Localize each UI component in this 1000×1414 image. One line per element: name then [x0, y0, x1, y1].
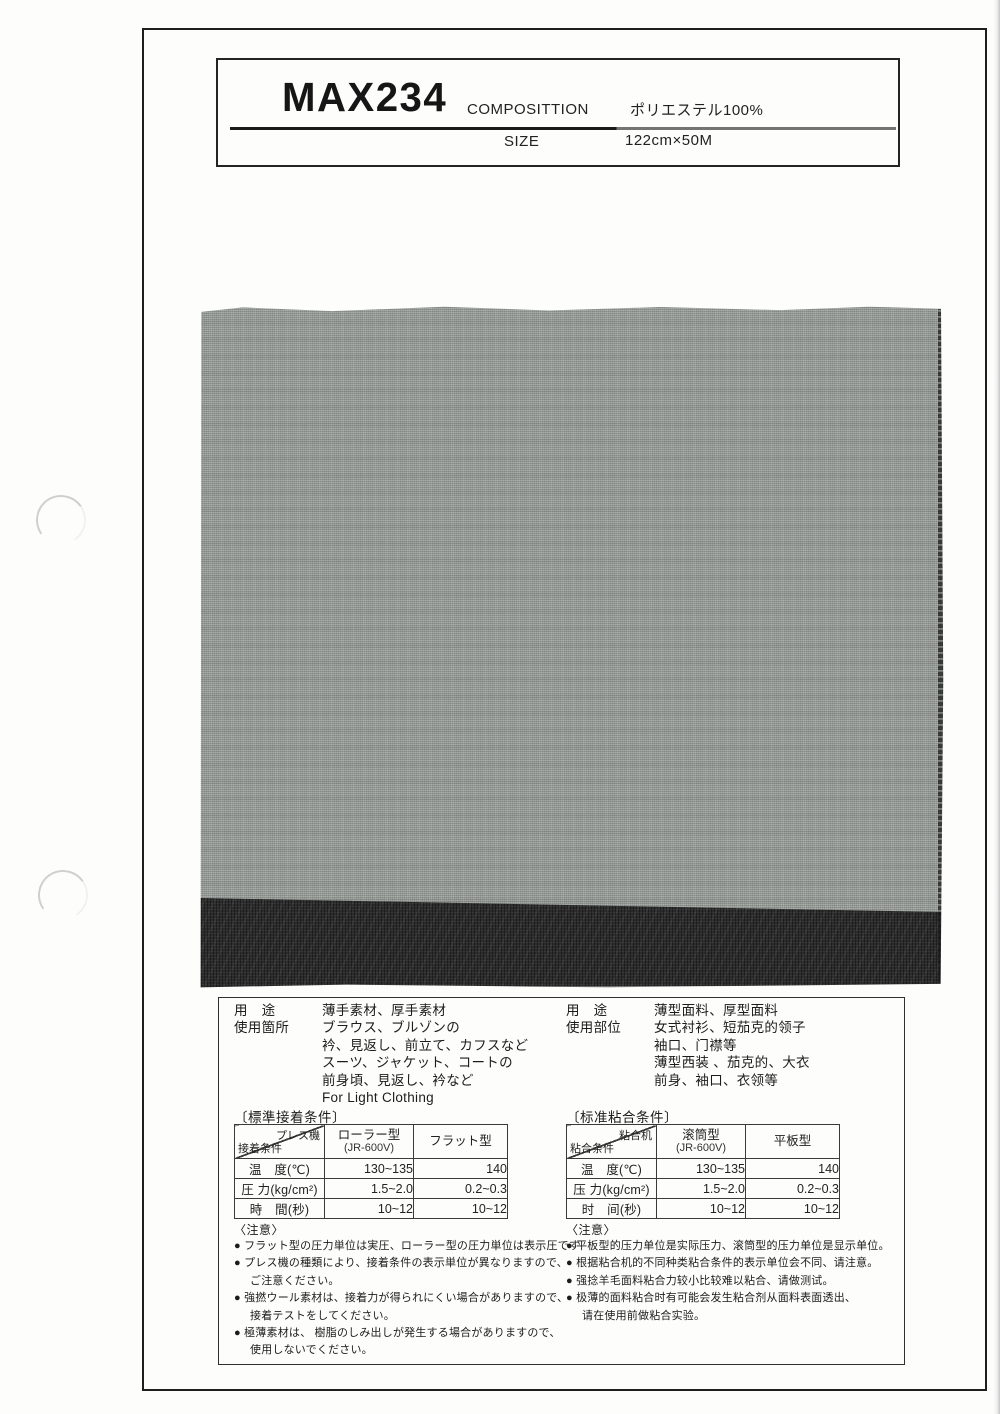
- column-header-roller: 滚筒型 (JR-600V): [657, 1125, 746, 1159]
- column-header-flat: 平板型: [746, 1125, 840, 1159]
- usage-text: 薄手素材、厚手素材: [322, 1002, 446, 1019]
- punch-hole-top: [32, 491, 90, 549]
- note-line: ● 根据粘合机的不同种类粘合条件的表示单位会不同、请注意。: [566, 1255, 910, 1272]
- usage-row: 使用部位女式衬衫、短茄克的领子: [566, 1019, 896, 1036]
- table-row-temperature: 温 度(℃) 130~135 140: [567, 1159, 840, 1179]
- usage-text: 薄型面料、厚型面料: [654, 1002, 778, 1019]
- table-row-time: 时 间(秒) 10~12 10~12: [567, 1199, 840, 1219]
- usage-text: 前身頃、見返し、衿など: [322, 1072, 474, 1089]
- punch-hole-bottom: [34, 866, 92, 924]
- notes-block-jp: ● フラット型の圧力単位は実圧、ローラー型の圧力単位は表示圧です ● プレス機の…: [234, 1238, 580, 1360]
- usage-block-jp: 用 途薄手素材、厚手素材 使用箇所ブラウス、ブルゾンの 衿、見返し、前立て、カフ…: [234, 1002, 566, 1106]
- chinese-column: 用 途薄型面料、厚型面料 使用部位女式衬衫、短茄克的领子 袖口、门襟等 薄型西装…: [566, 998, 896, 1364]
- bonding-conditions-table-cn: 粘合机 粘合条件 滚筒型 (JR-600V) 平板型 温 度(℃) 130~13…: [566, 1124, 840, 1219]
- note-line: 使用しないでください。: [234, 1342, 580, 1359]
- notes-title-cn: 〈注意〉: [566, 1221, 616, 1238]
- diagonal-bottom-label: 接着条件: [238, 1140, 282, 1156]
- usage-label: 用 途: [566, 1002, 654, 1019]
- usage-row: 袖口、门襟等: [566, 1037, 896, 1054]
- machine-model: (JR-600V): [657, 1142, 745, 1155]
- fabric-swatch: [198, 305, 944, 988]
- usage-label: 用 途: [234, 1002, 322, 1019]
- usage-text: 薄型西装 、茄克的、大衣: [654, 1054, 810, 1071]
- usage-label: 使用箇所: [234, 1019, 322, 1036]
- table-row-pressure: 压 力(kg/cm²) 1.5~2.0 0.2~0.3: [567, 1179, 840, 1199]
- usage-row: 前身頃、見返し、衿など: [234, 1072, 566, 1089]
- usage-label: 使用部位: [566, 1019, 654, 1036]
- note-line: ● 极薄的面料粘合时有可能会发生粘合剂从面料表面透出、: [566, 1290, 910, 1307]
- usage-row: 用 途薄手素材、厚手素材: [234, 1002, 566, 1019]
- usage-row: 用 途薄型面料、厚型面料: [566, 1002, 896, 1019]
- usage-text: 女式衬衫、短茄克的领子: [654, 1019, 806, 1036]
- usage-text: 袖口、门襟等: [654, 1037, 737, 1054]
- scan-edge-shadow: [993, 0, 1000, 1414]
- note-line: ● 强捻羊毛面料粘合力较小比较难以粘合、请做测试。: [566, 1273, 910, 1290]
- size-label: SIZE: [504, 133, 539, 150]
- usage-text: 前身、袖口、衣领等: [654, 1072, 778, 1089]
- table-row-time: 時 間(秒) 10~12 10~12: [235, 1199, 508, 1219]
- product-code: MAX234: [282, 74, 447, 121]
- table-title-cn: 〔标准粘合条件〕: [566, 1106, 678, 1126]
- fabric-texture-noise: [198, 305, 944, 988]
- diagonal-top-label: プレス機: [276, 1127, 320, 1143]
- usage-text: 衿、見返し、前立て、カフスなど: [322, 1037, 528, 1054]
- notes-block-cn: ● 平板型的压力单位是实际压力、滚筒型的压力单位是显示单位。 ● 根据粘合机的不…: [566, 1238, 910, 1325]
- header-divider-rule: [230, 127, 896, 130]
- japanese-column: 用 途薄手素材、厚手素材 使用箇所ブラウス、ブルゾンの 衿、見返し、前立て、カフ…: [234, 998, 566, 1364]
- note-line: 请在使用前做粘合实验。: [566, 1308, 910, 1325]
- composition-value: ポリエステル100%: [630, 99, 763, 120]
- scanned-spec-sheet: { "header": { "product_code": "MAX234", …: [0, 0, 1000, 1414]
- table-title-jp: 〔標準接着条件〕: [234, 1106, 346, 1126]
- note-line: ● フラット型の圧力単位は実圧、ローラー型の圧力単位は表示圧です: [234, 1238, 580, 1255]
- note-line: ● 強撚ウール素材は、接着力が得られにくい場合がありますので、: [234, 1290, 580, 1307]
- diagonal-bottom-label: 粘合条件: [570, 1140, 614, 1156]
- size-value: 122cm×50M: [625, 132, 712, 149]
- usage-row: 前身、袖口、衣领等: [566, 1072, 896, 1089]
- usage-row: 使用箇所ブラウス、ブルゾンの: [234, 1019, 566, 1036]
- usage-row: 衿、見返し、前立て、カフスなど: [234, 1037, 566, 1054]
- usage-row: 薄型西装 、茄克的、大衣: [566, 1054, 896, 1071]
- note-line: 接着テストをしてください。: [234, 1308, 580, 1325]
- usage-block-cn: 用 途薄型面料、厚型面料 使用部位女式衬衫、短茄克的领子 袖口、门襟等 薄型西装…: [566, 1002, 896, 1089]
- diagonal-header-cell: プレス機 接着条件: [235, 1125, 325, 1159]
- note-line: ● 平板型的压力单位是实际压力、滚筒型的压力单位是显示单位。: [566, 1238, 910, 1255]
- composition-label: COMPOSITTION: [467, 101, 589, 118]
- bonding-conditions-table-jp: プレス機 接着条件 ローラー型 (JR-600V) フラット型 温 度(℃) 1…: [234, 1124, 508, 1219]
- note-line: ● プレス機の種類により、接着条件の表示単位が異なりますので、: [234, 1255, 580, 1272]
- usage-text: ブラウス、ブルゾンの: [322, 1019, 460, 1036]
- fabric-dark-strip: [198, 891, 944, 988]
- usage-row: For Light Clothing: [234, 1089, 566, 1106]
- column-header-flat: フラット型: [414, 1125, 508, 1159]
- table-row-temperature: 温 度(℃) 130~135 140: [235, 1159, 508, 1179]
- note-line: ご注意ください。: [234, 1273, 580, 1290]
- header-box: MAX234 COMPOSITTION ポリエステル100% SIZE 122c…: [216, 58, 900, 167]
- column-header-roller: ローラー型 (JR-600V): [325, 1125, 414, 1159]
- usage-row: スーツ、ジャケット、コートの: [234, 1054, 566, 1071]
- diagonal-top-label: 粘合机: [619, 1127, 652, 1143]
- machine-model: (JR-600V): [325, 1142, 413, 1155]
- diagonal-header-cell: 粘合机 粘合条件: [567, 1125, 657, 1159]
- usage-text: スーツ、ジャケット、コートの: [322, 1054, 513, 1071]
- table-row-pressure: 圧 力(kg/cm²) 1.5~2.0 0.2~0.3: [235, 1179, 508, 1199]
- note-line: ● 極薄素材は、 樹脂のしみ出しが発生する場合がありますので、: [234, 1325, 580, 1342]
- notes-title-jp: 〈注意〉: [234, 1221, 284, 1238]
- content-box: 用 途薄手素材、厚手素材 使用箇所ブラウス、ブルゾンの 衿、見返し、前立て、カフ…: [218, 997, 905, 1365]
- usage-text: For Light Clothing: [322, 1089, 434, 1106]
